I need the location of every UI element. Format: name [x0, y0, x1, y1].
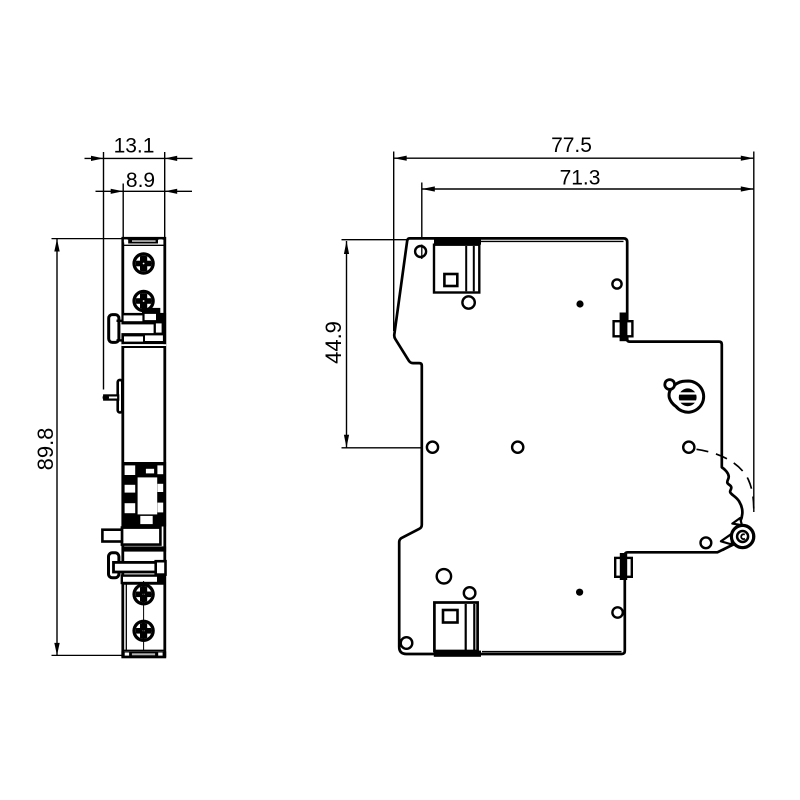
svg-text:71.3: 71.3 [560, 166, 601, 189]
svg-text:77.5: 77.5 [551, 134, 592, 157]
svg-text:44.9: 44.9 [321, 321, 346, 364]
svg-text:89.8: 89.8 [33, 428, 58, 471]
svg-text:13.1: 13.1 [114, 135, 155, 158]
svg-text:8.9: 8.9 [126, 169, 155, 192]
